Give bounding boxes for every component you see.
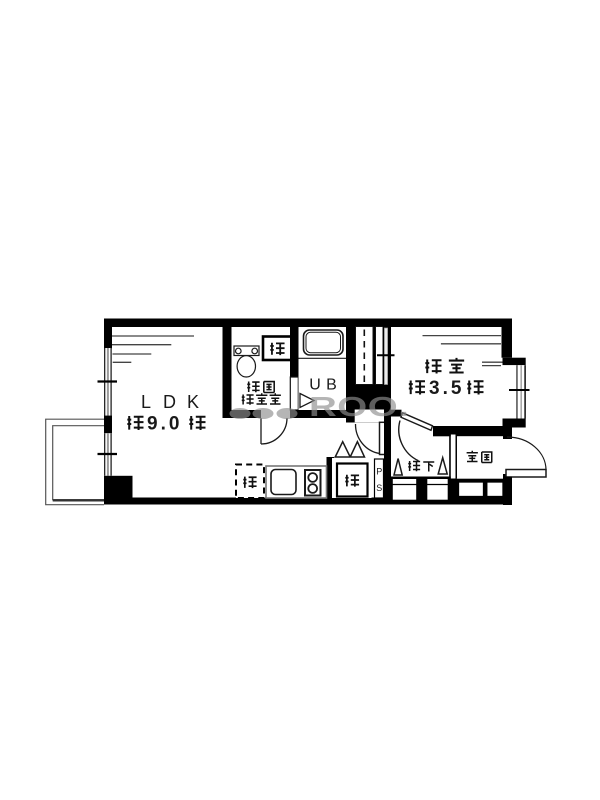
- svg-text:S: S: [376, 483, 382, 493]
- svg-text:ROO.: ROO.: [309, 392, 409, 423]
- svg-text:9.0: 9.0: [147, 414, 182, 435]
- svg-text:D: D: [163, 392, 176, 412]
- svg-text:B: B: [326, 377, 337, 394]
- svg-text:K: K: [187, 392, 199, 412]
- svg-text:L: L: [141, 392, 151, 412]
- svg-text:P: P: [376, 467, 382, 477]
- svg-text:U: U: [309, 377, 321, 394]
- svg-text:3.5: 3.5: [429, 378, 464, 399]
